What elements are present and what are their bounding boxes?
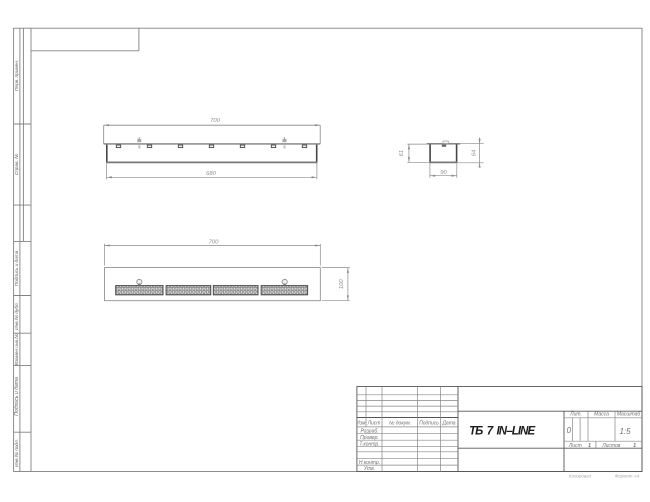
svg-text:Справ. №: Справ. № xyxy=(14,154,20,175)
svg-text:Масса: Масса xyxy=(594,412,609,418)
svg-text:680: 680 xyxy=(206,171,217,177)
svg-text:Инв.№ подл.: Инв.№ подл. xyxy=(14,439,20,467)
svg-text:700: 700 xyxy=(210,118,221,124)
svg-text:Изм.: Изм. xyxy=(356,420,367,426)
svg-text:Утв.: Утв. xyxy=(364,466,375,472)
svg-text:Подпись и дата: Подпись и дата xyxy=(14,377,20,416)
svg-text:100: 100 xyxy=(339,279,345,290)
svg-text:Дата: Дата xyxy=(441,420,455,426)
svg-text:61: 61 xyxy=(399,150,405,157)
svg-text:Масштаб: Масштаб xyxy=(617,412,641,418)
svg-text:Лист: Лист xyxy=(367,420,381,426)
svg-text:1:5: 1:5 xyxy=(619,427,631,436)
svg-text:Провер.: Провер. xyxy=(360,435,379,441)
svg-text:Взамен инв.№: Взамен инв.№ xyxy=(14,334,20,366)
svg-text:Разраб.: Разраб. xyxy=(360,428,378,434)
svg-text:ТБ 7 IN–LINE: ТБ 7 IN–LINE xyxy=(469,426,535,438)
svg-text:0: 0 xyxy=(567,426,572,435)
svg-text:Листов: Листов xyxy=(601,443,621,449)
svg-text:Лист: Лист xyxy=(568,443,582,449)
svg-text:Подпись и дата: Подпись и дата xyxy=(14,250,20,286)
svg-text:64: 64 xyxy=(472,149,478,156)
svg-text:1: 1 xyxy=(633,443,636,449)
svg-text:Т.контр.: Т.контр. xyxy=(359,441,379,447)
svg-text:Н.контр.: Н.контр. xyxy=(359,460,380,466)
svg-text:Копировал: Копировал xyxy=(569,474,592,479)
svg-text:Формат А4: Формат А4 xyxy=(615,474,640,479)
svg-text:90: 90 xyxy=(440,170,447,176)
svg-text:700: 700 xyxy=(209,239,220,245)
svg-text:Инв.№ дубл.: Инв.№ дубл. xyxy=(14,302,20,330)
svg-text:Лит.: Лит. xyxy=(569,412,582,418)
svg-text:№ докум.: № докум. xyxy=(389,420,411,426)
svg-text:Перв. примен.: Перв. примен. xyxy=(14,60,20,91)
svg-text:1: 1 xyxy=(588,443,591,449)
svg-text:Подпись: Подпись xyxy=(419,420,439,426)
